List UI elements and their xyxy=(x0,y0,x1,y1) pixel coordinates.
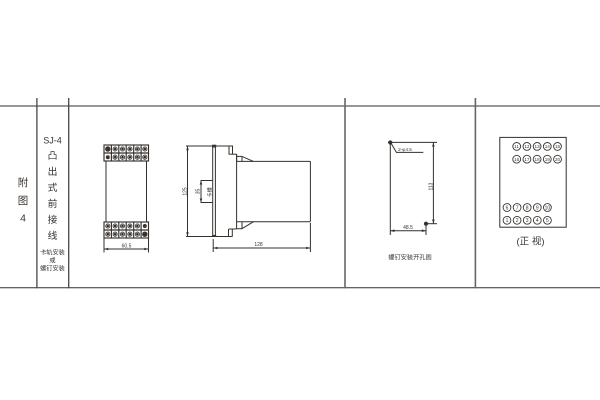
svg-text:128: 128 xyxy=(254,242,263,248)
svg-text:接: 接 xyxy=(48,213,58,226)
svg-text:线: 线 xyxy=(48,229,58,242)
svg-text:9: 9 xyxy=(536,205,539,211)
svg-text:35: 35 xyxy=(196,189,202,195)
svg-text:螺钉安装开孔图: 螺钉安装开孔图 xyxy=(388,254,431,262)
svg-text:3: 3 xyxy=(526,218,529,224)
svg-text:螺钉安装: 螺钉安装 xyxy=(40,265,65,273)
svg-text:60.5: 60.5 xyxy=(122,243,132,249)
svg-text:前: 前 xyxy=(48,197,58,210)
svg-text:2-φ4.5: 2-φ4.5 xyxy=(398,147,412,152)
svg-text:14: 14 xyxy=(545,144,551,149)
svg-text:出: 出 xyxy=(48,165,58,178)
svg-text:16: 16 xyxy=(514,157,520,162)
svg-text:附: 附 xyxy=(18,176,29,189)
svg-text:113: 113 xyxy=(428,182,434,190)
svg-text:卡轨安装: 卡轨安装 xyxy=(40,249,65,257)
svg-text:(正 视): (正 视) xyxy=(517,235,545,247)
svg-text:6: 6 xyxy=(506,205,509,211)
svg-text:19: 19 xyxy=(545,157,551,162)
svg-text:2: 2 xyxy=(516,218,519,224)
svg-text:4: 4 xyxy=(20,213,26,225)
svg-text:18: 18 xyxy=(535,157,541,162)
svg-text:12: 12 xyxy=(524,144,530,149)
svg-text:20: 20 xyxy=(555,157,561,162)
svg-text:凸: 凸 xyxy=(48,150,58,162)
svg-text:或: 或 xyxy=(49,257,55,265)
svg-text:48.5: 48.5 xyxy=(403,225,413,231)
svg-text:图: 图 xyxy=(18,195,29,207)
svg-text:7: 7 xyxy=(516,205,519,211)
svg-text:125: 125 xyxy=(183,187,189,196)
svg-text:1: 1 xyxy=(506,218,509,224)
svg-text:式: 式 xyxy=(48,181,58,194)
svg-text:15: 15 xyxy=(555,144,561,149)
svg-text:SJ-4: SJ-4 xyxy=(43,136,62,146)
svg-text:5: 5 xyxy=(546,218,549,224)
svg-text:11: 11 xyxy=(514,144,519,149)
svg-text:卡槽: 卡槽 xyxy=(206,187,213,197)
svg-text:10: 10 xyxy=(545,205,551,211)
svg-text:17: 17 xyxy=(524,157,530,162)
svg-text:13: 13 xyxy=(535,144,541,149)
svg-text:4: 4 xyxy=(536,218,539,224)
svg-text:8: 8 xyxy=(526,205,529,211)
